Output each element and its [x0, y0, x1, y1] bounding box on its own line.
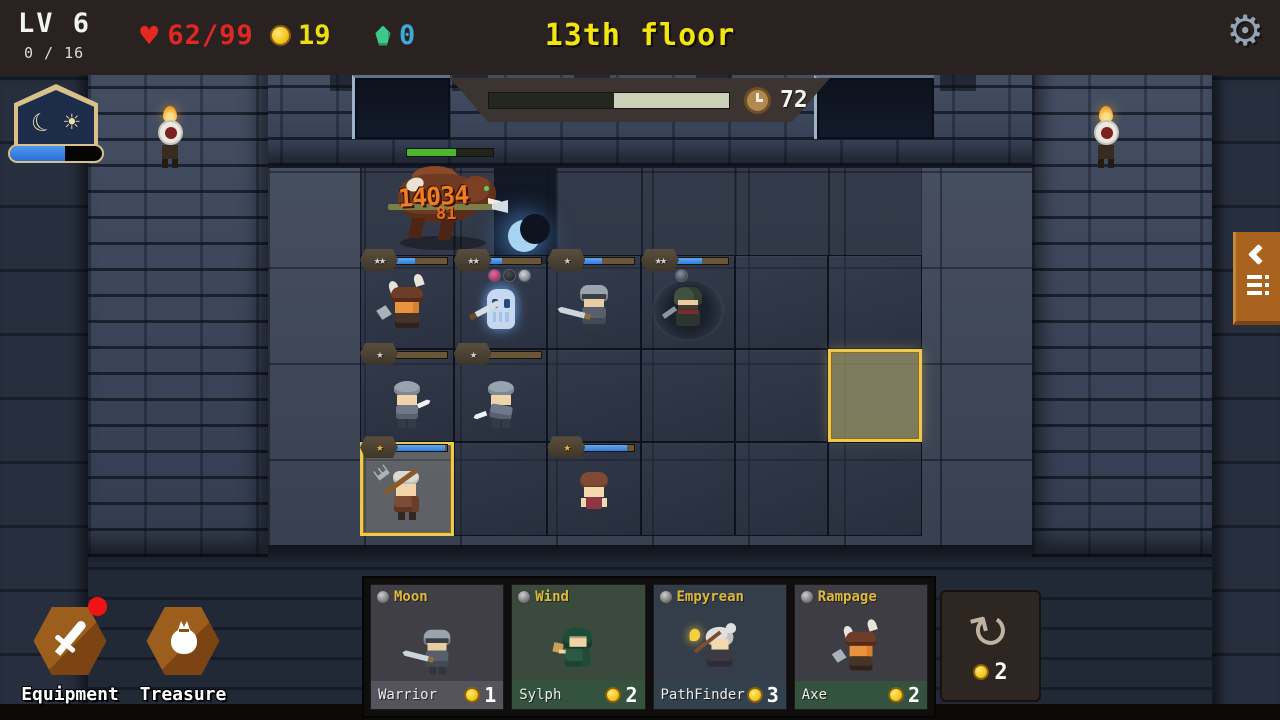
star-badge: ★★ [360, 249, 398, 271]
sword-icon [45, 612, 95, 663]
star-badge: ★ [547, 249, 585, 271]
synergy-empyrean-icon [659, 590, 673, 604]
viking-sprite [379, 279, 435, 339]
day-night-indicator: ☾ ☀ [8, 84, 104, 168]
treasure-label: Treasure [108, 684, 258, 705]
axe-sprite [834, 624, 887, 681]
unit-name: Warrior [378, 687, 437, 703]
synergy-rampage-icon [800, 590, 814, 604]
star-badge: ★★ [641, 249, 679, 271]
coin-icon [464, 687, 480, 703]
shop-card-sylph[interactable]: Wind Sylph 2 [511, 584, 645, 710]
potion-item-icon [488, 269, 501, 282]
knight-sprite [566, 279, 622, 339]
top-right-doorway [814, 75, 934, 139]
grid-cell[interactable] [735, 442, 829, 536]
money-bag-icon [169, 621, 199, 657]
coin-icon [747, 687, 763, 703]
boss-hp-bar [406, 148, 494, 157]
coin-icon [605, 687, 621, 703]
synergy-wind-icon [517, 590, 531, 604]
top-left-doorway [352, 75, 450, 139]
unit-rogue[interactable]: ★★ [641, 255, 735, 349]
star-badge: ★ [360, 343, 398, 365]
shop-card-pathfinder[interactable]: Empyrean PathFinder 3 [653, 584, 787, 710]
synergy-tag: Empyrean [677, 589, 744, 605]
coin-icon [888, 687, 904, 703]
grid-cell[interactable] [641, 442, 735, 536]
clock-icon [744, 87, 771, 114]
warrior-sprite [411, 624, 464, 681]
torch-statue-left [148, 106, 192, 170]
grid-cell[interactable] [454, 442, 548, 536]
star-badge: ★ [454, 343, 492, 365]
unit-soldier[interactable]: ★ [360, 349, 454, 443]
unit-price: 3 [767, 683, 779, 707]
top-hud: LV 6 0 / 16 ♥ 62/99 19 0 13th floor ⚙ [0, 0, 1280, 75]
notification-dot [88, 597, 107, 616]
shop-card-axe[interactable]: Rampage Axe 2 [794, 584, 928, 710]
right-edge-wall [1212, 75, 1280, 720]
torch-shield [158, 120, 183, 145]
day-night-progress-fill [10, 146, 65, 161]
dagger-item-icon [518, 269, 531, 282]
highlighted-grid-cell[interactable] [828, 349, 922, 443]
unit-price: 1 [484, 683, 496, 707]
girl-sprite [566, 466, 622, 526]
unit-name: Axe [802, 687, 827, 703]
unit-knight[interactable]: ★ [547, 255, 641, 349]
unit-price: 2 [625, 683, 637, 707]
ghost-sprite [473, 279, 529, 339]
grid-cell[interactable] [735, 349, 829, 443]
sun-icon: ☀ [62, 112, 81, 133]
unit-ghost[interactable]: ★★ [454, 255, 548, 349]
reroll-cost: 2 [994, 660, 1007, 685]
floor-title: 13th floor [0, 18, 1280, 53]
damage-number-secondary: 81 [436, 204, 456, 224]
game-screen: 72 ☾ ☀ 14034 81 [0, 0, 1280, 720]
grid-cell[interactable] [641, 349, 735, 443]
synergy-moon-icon [376, 590, 390, 604]
grid-cell[interactable] [547, 349, 641, 443]
pathfinder-sprite [693, 624, 746, 681]
boss-enemy[interactable]: 14034 81 [372, 148, 522, 260]
synergy-tag: Moon [394, 589, 428, 605]
star-badge: ★ [547, 436, 585, 458]
soldier-sprite [473, 373, 529, 433]
unit-price: 2 [908, 683, 920, 707]
shop-panel: Moon Warrior 1 Wind Sylph 2 Empyrean Pat… [362, 576, 936, 718]
bomb-item-icon [503, 269, 516, 282]
star-badge: ★★ [454, 249, 492, 271]
unit-name: Sylph [519, 687, 561, 703]
synergy-tag: Wind [535, 589, 569, 605]
refresh-icon: ↻ [965, 603, 1016, 659]
grid-cell[interactable] [828, 442, 922, 536]
axe-item-icon [675, 269, 688, 282]
wave-timer-panel: 72 [450, 78, 830, 122]
shop-card-warrior[interactable]: Moon Warrior 1 [370, 584, 504, 710]
sylph-sprite [552, 624, 605, 681]
settings-gear-icon[interactable]: ⚙ [1226, 10, 1264, 52]
rogue-sprite [660, 279, 716, 339]
list-icon [1247, 275, 1269, 295]
unit-soldier-2[interactable]: ★ [454, 349, 548, 443]
star-badge: ★ [360, 436, 398, 458]
moon-icon: ☾ [27, 106, 57, 138]
unit-girl[interactable]: ★ [547, 442, 641, 536]
damage-number: 14034 [397, 180, 469, 213]
unit-name: PathFinder [661, 687, 745, 703]
chevron-left-icon [1247, 244, 1268, 265]
day-night-progress-bar [8, 144, 104, 163]
wave-timer-bar [488, 92, 730, 109]
side-panel-tab[interactable] [1233, 232, 1280, 325]
grid-cell[interactable] [735, 255, 829, 349]
unit-farmer[interactable]: ★ [360, 442, 454, 536]
synergy-tag: Rampage [818, 589, 877, 605]
soldier-sprite [379, 373, 435, 433]
torch-statue-right [1084, 106, 1128, 170]
coin-icon [973, 664, 989, 680]
torch-shield [1094, 120, 1119, 145]
grid-cell[interactable] [828, 255, 922, 349]
farmer-sprite [379, 466, 435, 526]
unit-viking[interactable]: ★★ [360, 255, 454, 349]
day-night-badge: ☾ ☀ [14, 84, 98, 148]
wave-timer-remaining [614, 93, 729, 108]
reroll-button[interactable]: ↻ 2 [940, 590, 1041, 702]
